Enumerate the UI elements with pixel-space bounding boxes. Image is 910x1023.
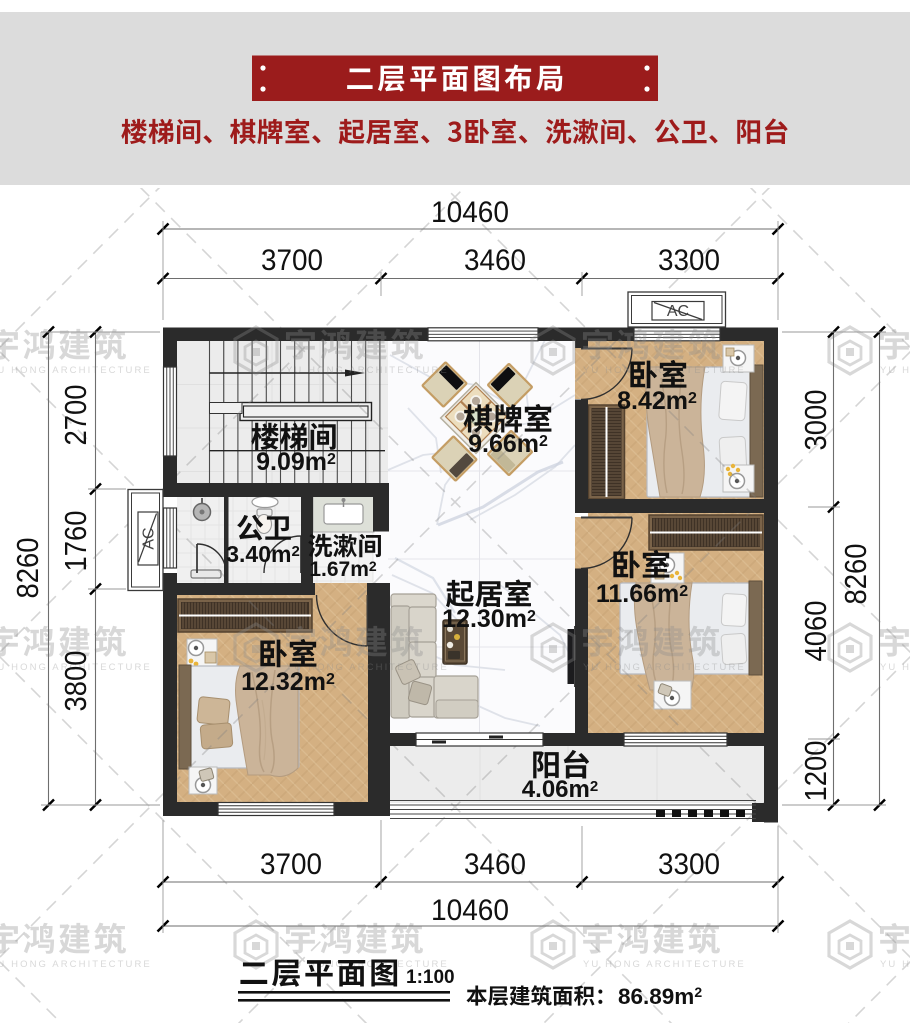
svg-text:8.42m2: 8.42m2 xyxy=(617,387,697,415)
svg-text:YU HONG ARCHITECTURE: YU HONG ARCHITECTURE xyxy=(880,365,910,376)
svg-text:8260: 8260 xyxy=(838,544,873,605)
svg-text:1.67m2: 1.67m2 xyxy=(309,558,377,581)
svg-text:YU HONG ARCHITECTURE: YU HONG ARCHITECTURE xyxy=(583,662,746,673)
svg-text:3300: 3300 xyxy=(658,244,720,277)
svg-text:10460: 10460 xyxy=(431,894,509,927)
svg-text:YU HONG ARCHITECTURE: YU HONG ARCHITECTURE xyxy=(583,959,746,970)
svg-text:3800: 3800 xyxy=(58,651,93,712)
svg-text:3000: 3000 xyxy=(798,390,833,451)
svg-text:12.30m2: 12.30m2 xyxy=(442,605,536,633)
svg-text:3300: 3300 xyxy=(658,848,720,881)
svg-text:4060: 4060 xyxy=(798,601,833,662)
svg-text:YU HONG ARCHITECTURE: YU HONG ARCHITECTURE xyxy=(0,365,152,376)
svg-text:YU HONG ARCHITECTURE: YU HONG ARCHITECTURE xyxy=(880,959,910,970)
svg-text:3460: 3460 xyxy=(464,848,526,881)
svg-text:YU HONG ARCHITECTURE: YU HONG ARCHITECTURE xyxy=(0,959,152,970)
svg-text:AC: AC xyxy=(141,527,158,549)
svg-text:9.66m2: 9.66m2 xyxy=(468,430,548,458)
svg-text:YU HONG ARCHITECTURE: YU HONG ARCHITECTURE xyxy=(286,365,449,376)
svg-text:2700: 2700 xyxy=(58,385,93,446)
svg-text:3460: 3460 xyxy=(464,244,526,277)
svg-text:3700: 3700 xyxy=(260,848,322,881)
svg-text:9.09m2: 9.09m2 xyxy=(256,448,336,476)
svg-text:YU HONG ARCHITECTURE: YU HONG ARCHITECTURE xyxy=(880,662,910,673)
svg-text:11.66m2: 11.66m2 xyxy=(596,580,688,608)
svg-text:8260: 8260 xyxy=(10,538,45,599)
svg-text:4.06m2: 4.06m2 xyxy=(522,776,598,803)
svg-text:3700: 3700 xyxy=(261,244,323,277)
svg-text:1:100: 1:100 xyxy=(406,967,455,988)
svg-text:1760: 1760 xyxy=(58,511,93,572)
svg-text:1200: 1200 xyxy=(798,741,833,802)
svg-text:10460: 10460 xyxy=(431,196,509,229)
svg-text:86.89m2: 86.89m2 xyxy=(618,984,702,1009)
svg-text:3.40m2: 3.40m2 xyxy=(226,541,300,567)
svg-text:12.32m2: 12.32m2 xyxy=(241,668,335,696)
